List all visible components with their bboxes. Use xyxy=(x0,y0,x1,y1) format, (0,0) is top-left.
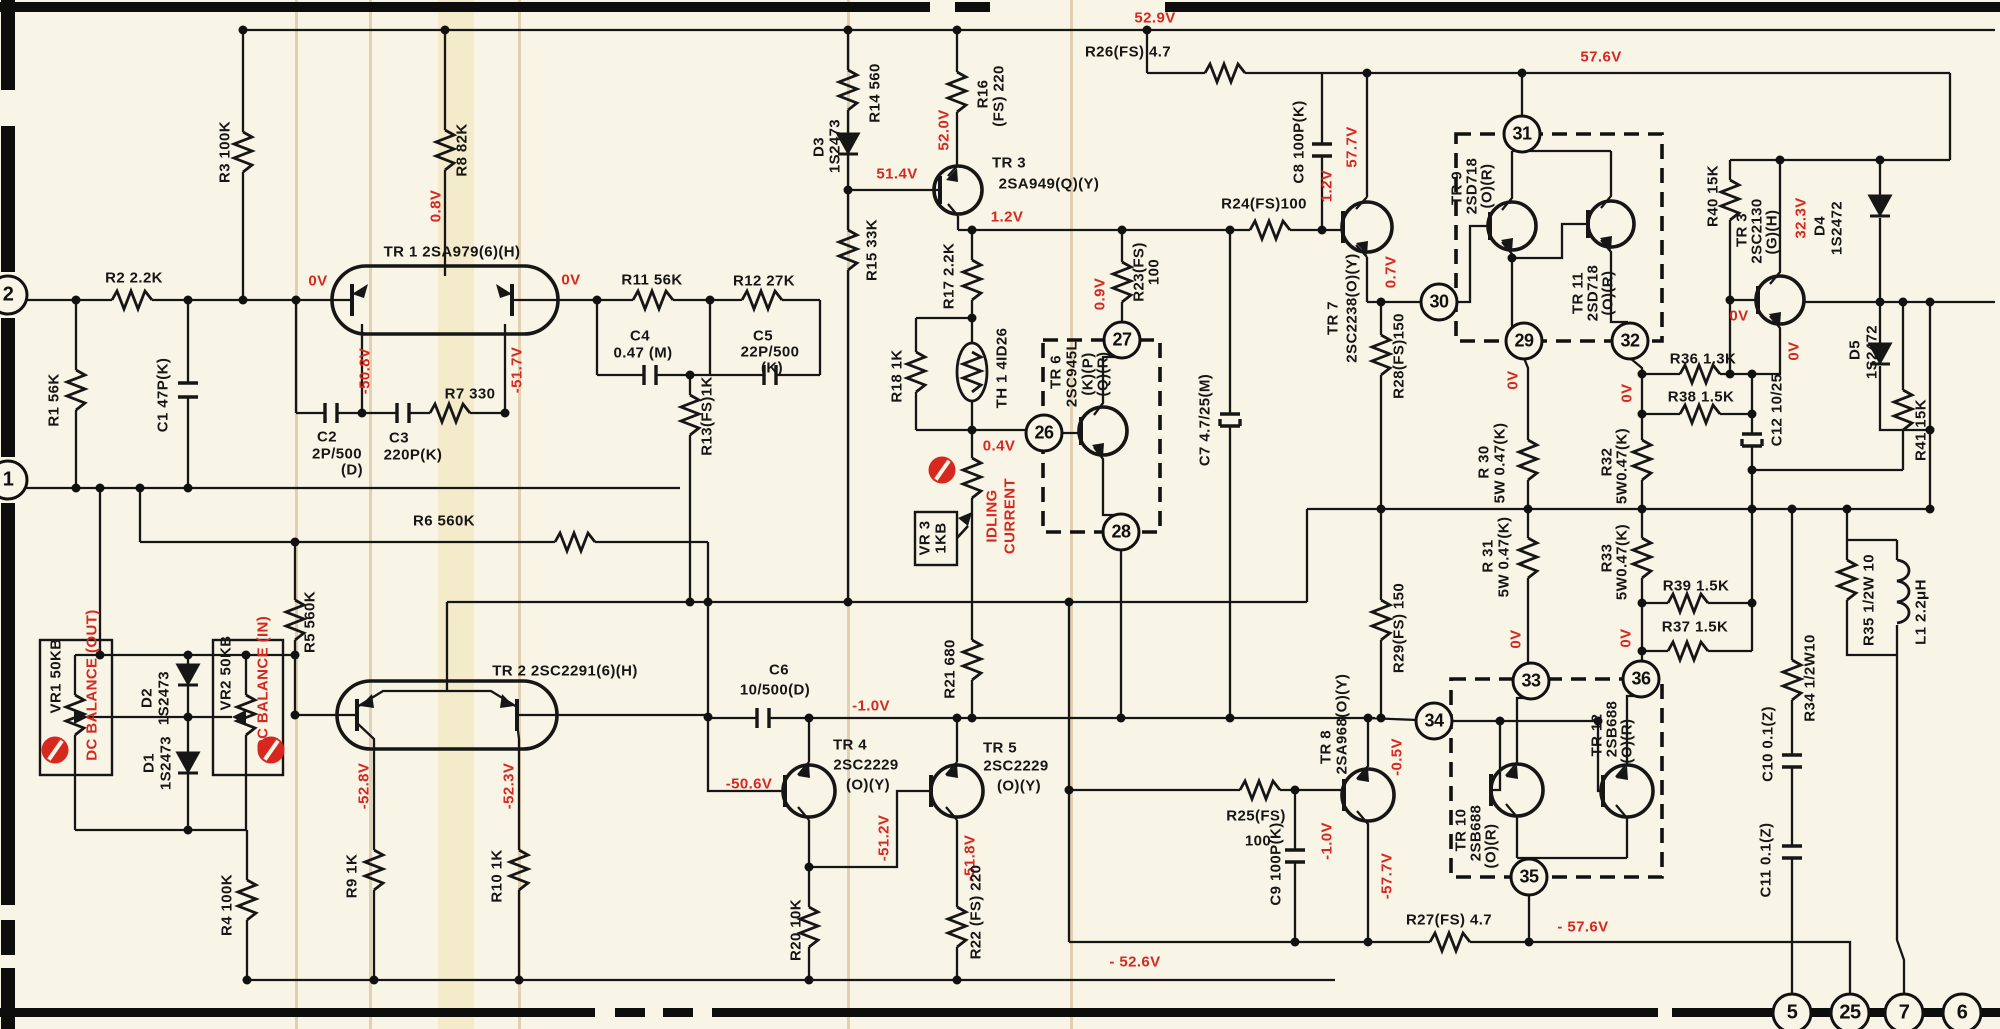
component-label: R18 1K xyxy=(889,349,906,402)
circled-node-36: 36 xyxy=(1622,660,1661,699)
terminal-7: 7 xyxy=(1884,993,1925,1029)
voltage-label: 0.4V xyxy=(983,438,1015,455)
component-label: R39 1.5K xyxy=(1663,578,1730,595)
voltage-label: DC BALANCE (IN) xyxy=(255,616,272,750)
component-label: R9 1K xyxy=(344,854,361,899)
component-label: R7 330 xyxy=(445,386,496,403)
voltage-label: 0.8V xyxy=(428,190,445,222)
component-label: VR 3 xyxy=(917,521,934,556)
voltage-label: 0V xyxy=(1729,308,1748,325)
component-label: R28(FS)150 xyxy=(1391,313,1408,399)
component-label: R8 82K xyxy=(454,123,471,176)
voltage-label: 0V xyxy=(561,272,580,289)
component-label: R1 56K xyxy=(46,373,63,426)
component-label: R27(FS) 4.7 xyxy=(1406,912,1492,929)
component-label: 1S2473 xyxy=(156,671,173,725)
component-label: 2P/500 xyxy=(312,446,362,463)
component-label: 2SA949(Q)(Y) xyxy=(999,176,1100,193)
voltage-label: -51.2V xyxy=(876,815,893,862)
component-label: C1 47P(K) xyxy=(155,358,172,432)
component-label: (O)(R) xyxy=(1479,164,1496,209)
component-label: TR 6 xyxy=(1048,355,1065,389)
voltage-label: 1.2V xyxy=(991,209,1023,226)
thermistor-th1 xyxy=(957,343,987,401)
component-label: 1KB xyxy=(933,522,950,553)
voltage-label: 0V xyxy=(1508,629,1525,648)
circled-node-28: 28 xyxy=(1102,513,1141,552)
voltage-label: 0V xyxy=(1505,370,1522,389)
component-label: (K) xyxy=(761,360,783,377)
voltage-label: 57.7V xyxy=(1344,126,1361,167)
schematic-page: R2 2.2KR1 56KC1 47P(K)R3 100KR8 82K0.8VT… xyxy=(0,0,2000,1029)
component-label: R 30 xyxy=(1476,445,1493,478)
component-label: R37 1.5K xyxy=(1662,619,1729,636)
terminal-25: 25 xyxy=(1830,993,1871,1029)
voltage-label: CURRENT xyxy=(1002,478,1019,554)
voltage-label: IDLING xyxy=(984,489,1001,542)
component-label: 10/500(D) xyxy=(740,682,810,699)
component-label: (O)(R) xyxy=(1483,824,1500,869)
voltage-label: -51.7V xyxy=(509,347,526,394)
component-label: R24(FS)100 xyxy=(1221,196,1307,213)
component-label: (O)(Y) xyxy=(846,777,890,794)
voltage-label: 51.4V xyxy=(876,166,917,183)
component-label: R36 1.3K xyxy=(1670,351,1737,368)
voltage-label: -1.0V xyxy=(1319,822,1336,860)
component-label: TH 1 4ID26 xyxy=(994,328,1011,409)
component-label: R17 2.2K xyxy=(941,243,958,310)
component-label: R41 15K xyxy=(1913,399,1930,461)
wiper-arrows xyxy=(74,512,972,724)
adjustment-mark-icon xyxy=(929,457,956,484)
component-label: 5W 0.47(K) xyxy=(1492,423,1509,504)
terminal-6: 6 xyxy=(1942,993,1983,1029)
component-label: VR1 50KB xyxy=(48,639,65,714)
component-label: R34 1/2W10 xyxy=(1802,634,1819,721)
adjustment-mark-icon xyxy=(258,737,285,764)
component-label: R2 2.2K xyxy=(105,270,163,287)
voltage-label: 1.2V xyxy=(1319,170,1336,202)
circled-node-30: 30 xyxy=(1420,283,1459,322)
component-label: 2SA968(O)(Y) xyxy=(1334,674,1351,775)
component-label: TR 5 xyxy=(983,740,1017,757)
component-label: 1S2472 xyxy=(1864,325,1881,379)
inductor-l1 xyxy=(1897,560,1909,623)
component-label: R22 (FS) 220 xyxy=(968,865,985,960)
component-label: C7 4.7/25(M) xyxy=(1197,374,1214,466)
component-label: (O)(R) xyxy=(1600,271,1617,316)
component-label: R16 xyxy=(975,80,992,109)
component-label: (G)(H) xyxy=(1764,210,1781,255)
voltage-label: 0.9V xyxy=(1092,278,1109,310)
component-label: 2SC2229 xyxy=(983,758,1048,775)
component-label: 2SC2229 xyxy=(833,757,898,774)
circled-node-34: 34 xyxy=(1415,702,1454,741)
voltage-label: - 57.6V xyxy=(1557,919,1608,936)
component-label: 5W 0.47(K) xyxy=(1496,517,1513,598)
component-label: (Q)(R) xyxy=(1095,352,1112,397)
component-label: 220P(K) xyxy=(384,447,443,464)
circled-node-32: 32 xyxy=(1611,322,1650,361)
voltage-label: 52.0V xyxy=(936,109,953,150)
voltage-label: -1.0V xyxy=(852,698,890,715)
component-label: R20 10K xyxy=(788,899,805,961)
component-label: TR 3 xyxy=(992,155,1026,172)
component-label: 5W0.47(K) xyxy=(1614,524,1631,600)
component-label: R35 1/2W 10 xyxy=(1861,554,1878,646)
component-label: C4 xyxy=(630,328,650,345)
circled-node-27: 27 xyxy=(1103,321,1142,360)
component-label: R10 1K xyxy=(489,849,506,902)
component-label: C10 0.1(Z) xyxy=(1760,706,1777,782)
component-label: VR2 50KB xyxy=(218,636,235,711)
component-label: R26(FS) 4.7 xyxy=(1085,44,1171,61)
component-label: R3 100K xyxy=(217,121,234,183)
component-label: R15 33K xyxy=(864,219,881,281)
component-label: D1 xyxy=(141,753,158,773)
component-label: 5W0.47(K) xyxy=(1614,428,1631,504)
component-label: 0.47 (M) xyxy=(613,345,672,362)
component-label: 1S2473 xyxy=(158,736,175,790)
voltage-label: -52.8V xyxy=(356,763,373,810)
voltage-label: -0.5V xyxy=(1389,738,1406,776)
component-label: C11 0.1(Z) xyxy=(1758,823,1775,898)
component-label: 22P/500 xyxy=(741,344,800,361)
circled-node-29: 29 xyxy=(1505,322,1544,361)
component-label: TR 4 xyxy=(833,737,867,754)
component-label: R14 560 xyxy=(867,63,884,123)
component-label: R12 27K xyxy=(733,273,795,290)
component-label: TR 8 xyxy=(1318,730,1335,764)
component-label: (FS) 220 xyxy=(991,65,1008,127)
trimmer-boxes xyxy=(40,512,968,775)
component-label: D2 xyxy=(139,688,156,708)
voltage-label: - 52.6V xyxy=(1109,954,1160,971)
component-label: D3 xyxy=(811,137,828,157)
component-label: TR 7 xyxy=(1325,301,1342,335)
component-label: 1S2473 xyxy=(827,119,844,173)
component-label: R5 560K xyxy=(302,591,319,653)
circled-node-26: 26 xyxy=(1025,414,1064,453)
adjustment-mark-icon xyxy=(42,737,69,764)
component-label: R13(FS)1K xyxy=(699,376,716,455)
component-label: R29(FS) 150 xyxy=(1391,583,1408,673)
component-label: C5 xyxy=(753,328,773,345)
voltage-label: -57.7V xyxy=(1379,853,1396,900)
component-label: D5 xyxy=(1847,340,1864,360)
voltage-label: 52.9V xyxy=(1134,10,1175,27)
component-label: TR 2 2SC2291(6)(H) xyxy=(492,663,638,680)
component-label: 2SC945L xyxy=(1064,341,1081,407)
circled-node-33: 33 xyxy=(1512,662,1551,701)
voltage-label: 0V xyxy=(308,273,327,290)
voltage-label: 57.6V xyxy=(1580,49,1621,66)
component-label: R4 100K xyxy=(219,874,236,936)
component-label: 1S2472 xyxy=(1829,201,1846,255)
component-label: R6 560K xyxy=(413,513,475,530)
component-label: C8 100P(K) xyxy=(1291,100,1308,183)
voltage-label: DC BALANCE (OUT) xyxy=(84,609,101,760)
voltage-label: 0V xyxy=(1786,341,1803,360)
component-label: (D) xyxy=(341,462,363,479)
component-label: TR 1 2SA979(6)(H) xyxy=(384,244,521,261)
voltage-label: 0V xyxy=(1619,383,1636,402)
component-label: (O)(Y) xyxy=(997,778,1041,795)
component-label: C3 xyxy=(389,430,409,447)
component-label: C6 xyxy=(769,662,789,679)
voltage-label: 0V xyxy=(1618,628,1635,647)
component-label: R 31 xyxy=(1480,539,1497,572)
component-label: C12 10/25 xyxy=(1769,374,1786,447)
component-label: C2 xyxy=(317,429,337,446)
component-label: R40 15K xyxy=(1705,165,1722,227)
circled-node-31: 31 xyxy=(1503,115,1542,154)
emitter-arrows xyxy=(352,168,1781,782)
component-label: 2SC2238(O)(Y) xyxy=(1344,253,1361,362)
component-label: D4 xyxy=(1812,216,1829,236)
terminal-5: 5 xyxy=(1772,993,1813,1029)
voltage-label: -52.3V xyxy=(501,763,518,810)
component-label: R38 1.5K xyxy=(1668,389,1735,406)
voltage-label: 0.7V xyxy=(1383,256,1400,288)
voltage-label: -50.6V xyxy=(726,776,773,793)
voltage-label: -50.8V xyxy=(357,348,374,395)
component-label: C9 100P(K) xyxy=(1268,822,1285,905)
component-label: R11 56K xyxy=(621,272,682,289)
voltage-label: 32.3V xyxy=(1793,197,1810,238)
component-label: L1 2.2μH xyxy=(1913,579,1930,645)
component-label: (O)(R) xyxy=(1619,719,1636,764)
component-label: 100 xyxy=(1146,259,1163,285)
component-label: R21 680 xyxy=(942,639,959,699)
circled-node-35: 35 xyxy=(1510,858,1549,897)
